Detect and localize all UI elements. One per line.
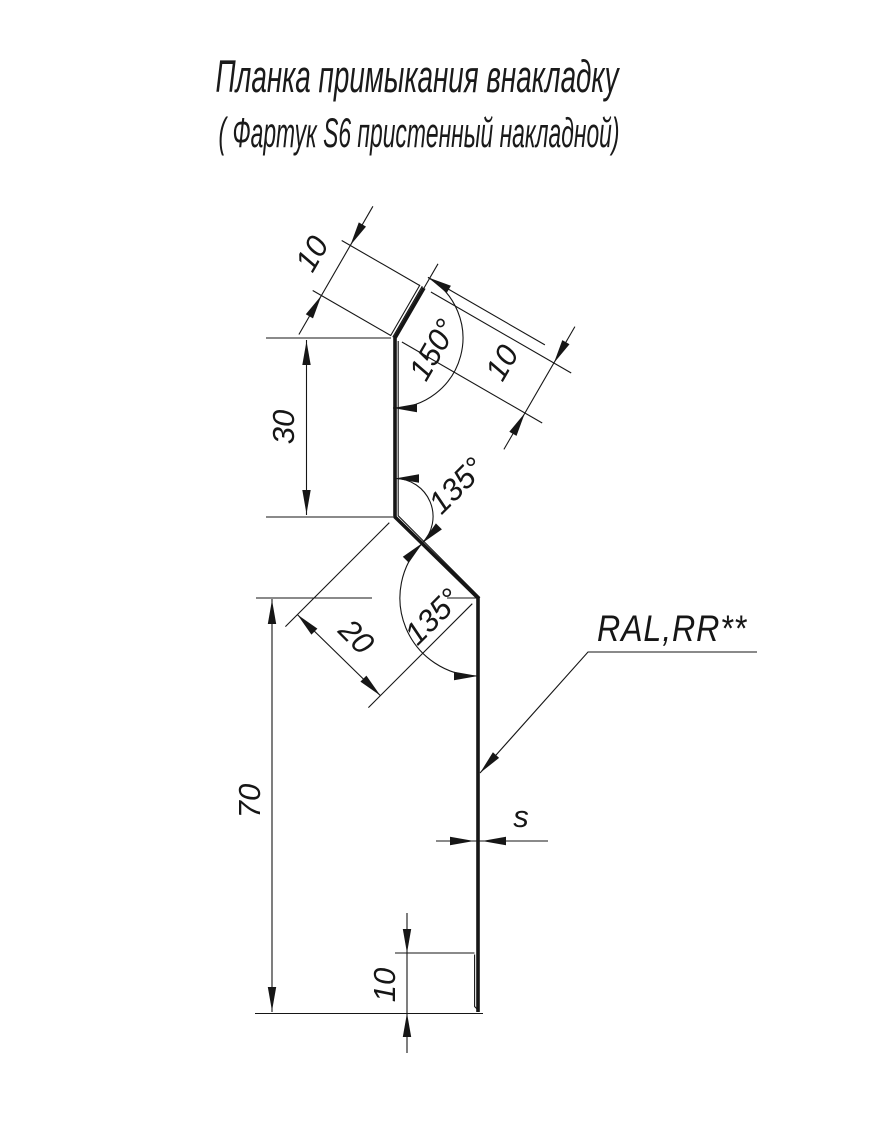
extension-line [313,291,391,336]
angle-150-top-bend: 150° [393,264,545,412]
dimension-thickness-s: s [436,799,548,845]
leader-line [480,652,757,773]
arrowhead [360,676,380,696]
title-line-2: ( Фартук S6 пристенный накладной) [219,109,620,156]
dim-70-label: 70 [232,784,267,818]
arrowhead [268,600,276,624]
arrowhead [450,837,474,845]
arrowhead [302,490,310,514]
top-hem-fold-line-2 [391,285,421,336]
dimension-upper-face-30: 30 [266,338,393,517]
coating-label: RAL,RR** [597,608,748,649]
technical-drawing-page: Планка примыкания внакладку ( Фартук S6 … [0,0,873,1124]
arrowhead [403,929,411,953]
angle-135-lower-bend: 135° [398,543,478,680]
dim-10-hem-outer-label: 10 [288,230,336,277]
arrowhead [509,413,525,436]
arrowhead [403,543,423,563]
dimension-bottom-hem-10: 10 [367,913,475,1053]
dim-s-label: s [513,799,529,834]
angle-150-label: 150° [402,313,464,386]
top-hem-fold-line-1 [393,286,423,337]
hem-extension-line [424,264,438,288]
arrowhead [302,341,310,365]
angle-135-lower-label: 135° [398,582,468,652]
dim-20-label: 20 [331,611,381,661]
drawing-canvas: Планка примыкания внакладку ( Фартук S6 … [0,0,873,1124]
arrowhead [297,615,317,635]
extension-line [285,523,389,627]
leader-arrowhead [480,752,499,773]
title-line-1: Планка примыкания внакладку [216,51,621,102]
arrowhead [403,1013,411,1037]
arrowhead [454,672,478,680]
extension-line [342,241,420,286]
arrowhead [554,340,570,363]
arrowhead [306,296,322,319]
dim-10-bottom-label: 10 [367,968,402,1002]
coating-callout: RAL,RR** [480,608,757,773]
drawing-title: Планка примыкания внакладку ( Фартук S6 … [216,51,621,156]
dimension-lower-face-70: 70 [232,598,483,1014]
arrowhead [482,837,506,845]
dimension-top-hem-outer-10: 10 [288,206,420,335]
arrowhead [428,277,451,293]
dim-10-hem-return-label: 10 [478,339,526,386]
profile-outer-contour [395,288,478,1012]
arrowhead [350,222,366,245]
arrowhead [268,987,276,1011]
dim-30-label: 30 [266,410,301,444]
